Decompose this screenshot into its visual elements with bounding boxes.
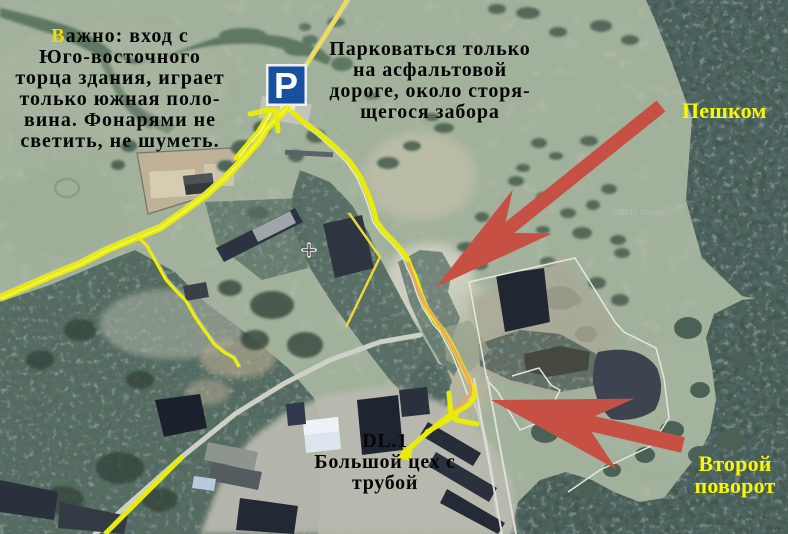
svg-text:P: P bbox=[274, 65, 298, 106]
svg-text:© 2011 Google: © 2011 Google bbox=[612, 208, 666, 217]
